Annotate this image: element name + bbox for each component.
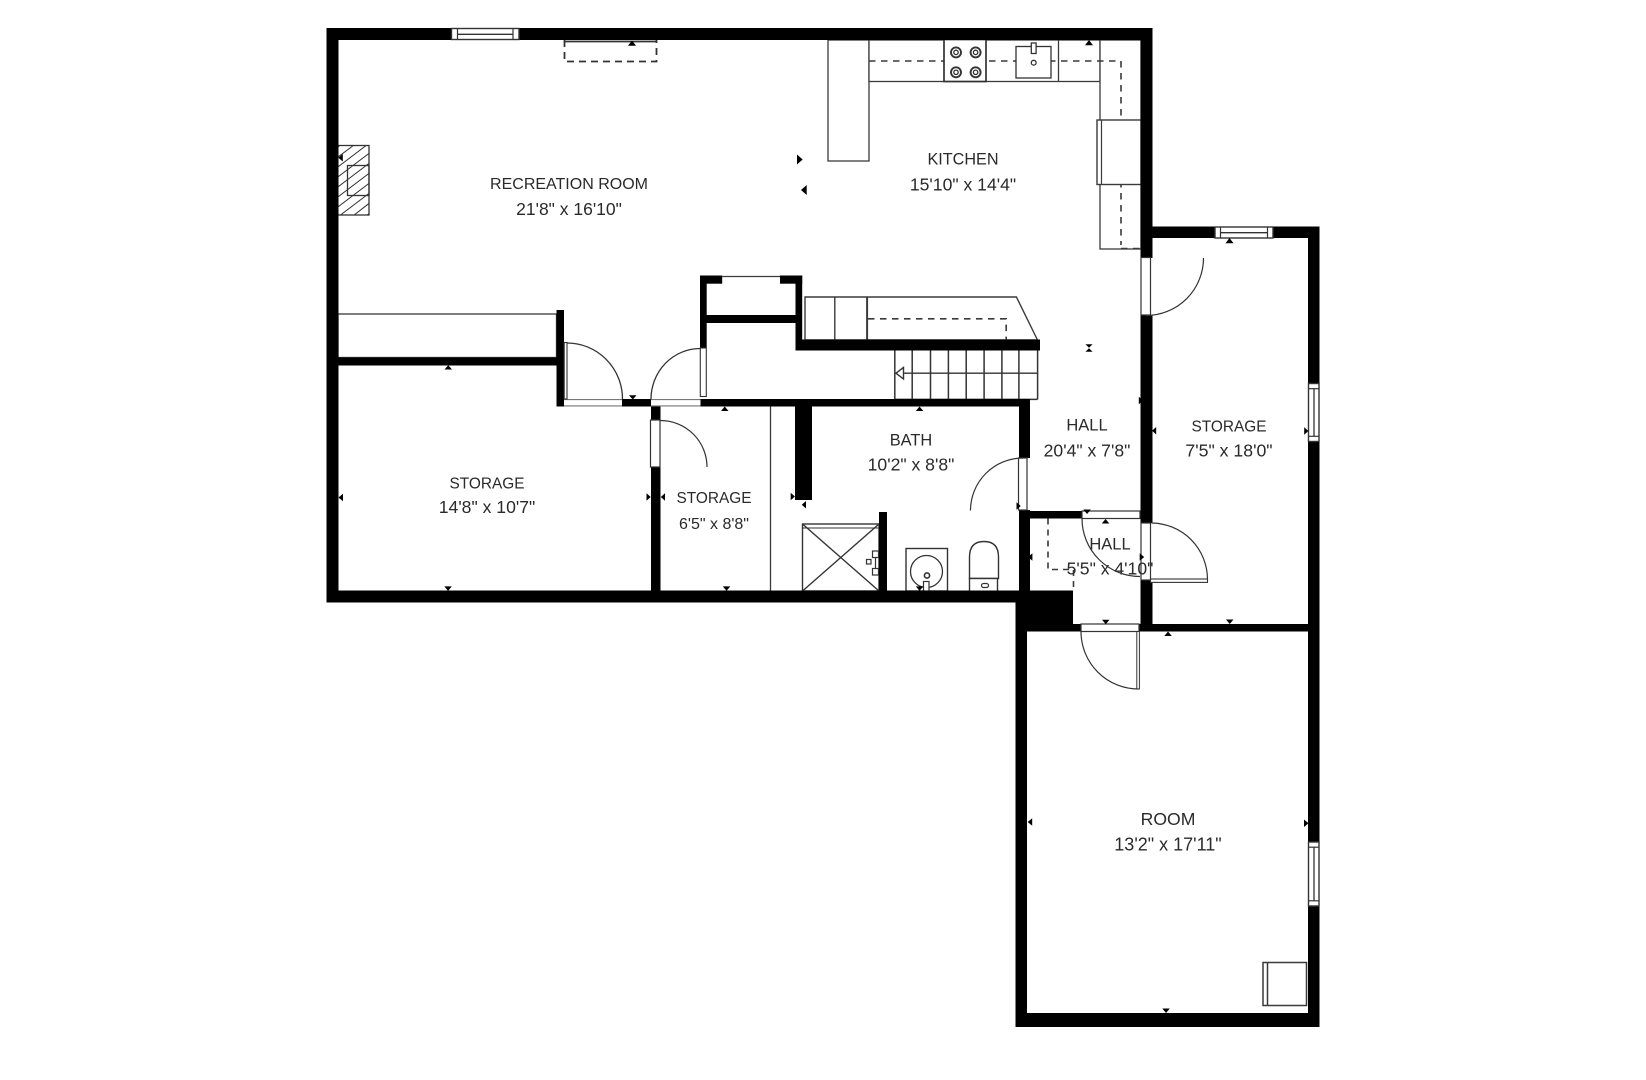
svg-text:RECREATION ROOM: RECREATION ROOM [490,176,648,193]
svg-text:5'5" x 4'10": 5'5" x 4'10" [1067,559,1154,579]
svg-text:14'8" x 10'7": 14'8" x 10'7" [439,497,536,517]
svg-text:STORAGE: STORAGE [677,490,752,507]
svg-text:STORAGE: STORAGE [1192,419,1267,436]
svg-text:7'5" x 18'0": 7'5" x 18'0" [1185,441,1272,461]
svg-text:10'2" x 8'8": 10'2" x 8'8" [868,455,955,475]
svg-text:6'5" x 8'8": 6'5" x 8'8" [679,516,749,533]
svg-text:KITCHEN: KITCHEN [927,151,998,169]
svg-text:13'2" x 17'11": 13'2" x 17'11" [1114,835,1221,855]
svg-text:ROOM: ROOM [1141,809,1196,829]
svg-text:15'10" x 14'4": 15'10" x 14'4" [910,175,1016,195]
svg-text:21'8" x 16'10": 21'8" x 16'10" [516,199,622,219]
svg-text:STORAGE: STORAGE [450,476,525,493]
svg-text:BATH: BATH [890,432,933,450]
svg-text:HALL: HALL [1066,417,1107,435]
svg-text:20'4" x 7'8": 20'4" x 7'8" [1044,441,1131,461]
svg-text:HALL: HALL [1089,536,1130,554]
